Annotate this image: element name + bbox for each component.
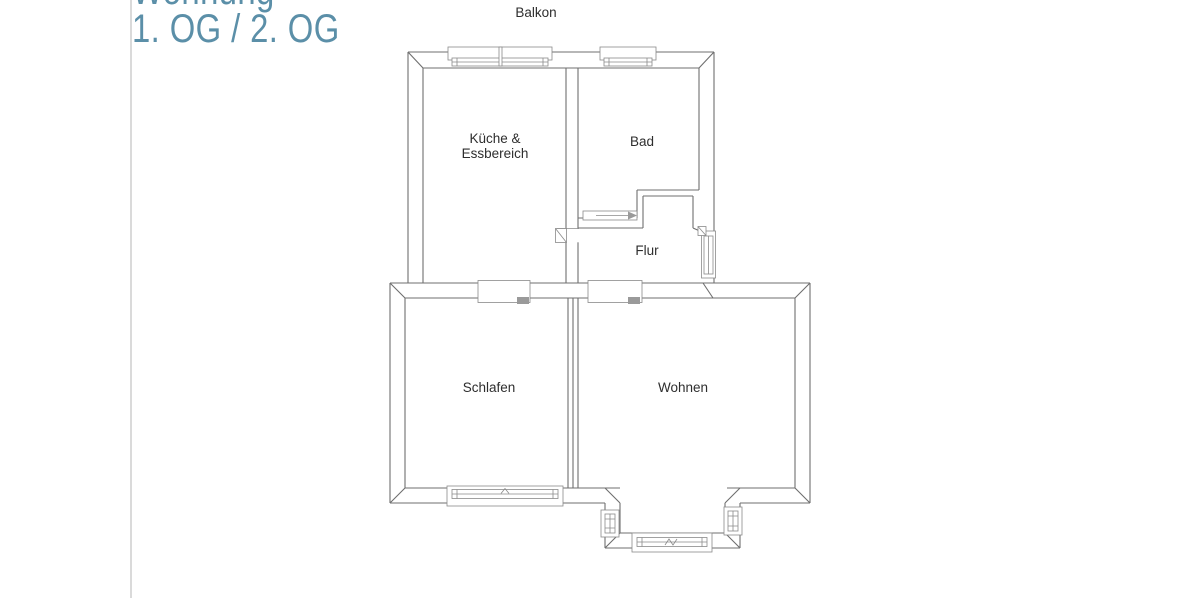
- window-hall-right: [698, 227, 716, 279]
- bedroom-label: Schlafen: [463, 380, 516, 395]
- floorplan-canvas: Balkon Küche & Essbereich Bad Flur Schla…: [0, 0, 1200, 600]
- window-bay-left: [601, 510, 619, 537]
- doorway-bedroom-threshold: [517, 297, 529, 304]
- interior-wall-lines: [566, 68, 578, 488]
- lower-section-walls: [390, 283, 810, 548]
- window-bedroom: [447, 486, 563, 506]
- bath-label: Bad: [630, 134, 654, 149]
- window-bay-bottom: [632, 533, 712, 552]
- balcony-label: Balkon: [515, 5, 556, 20]
- doorway-living-threshold: [628, 297, 640, 304]
- hall-label: Flur: [635, 243, 659, 258]
- page: Wohnung 1. OG / 2. OG: [0, 0, 1200, 600]
- living-label: Wohnen: [658, 380, 708, 395]
- window-kitchen-double: [448, 47, 552, 66]
- kitchen-label-line2: Essbereich: [462, 146, 529, 161]
- kitchen-label-line1: Küche &: [469, 131, 520, 146]
- upper-section-walls: [408, 52, 714, 298]
- window-bath: [600, 47, 656, 66]
- door-openings: [478, 211, 642, 304]
- window-bay-right: [724, 507, 742, 535]
